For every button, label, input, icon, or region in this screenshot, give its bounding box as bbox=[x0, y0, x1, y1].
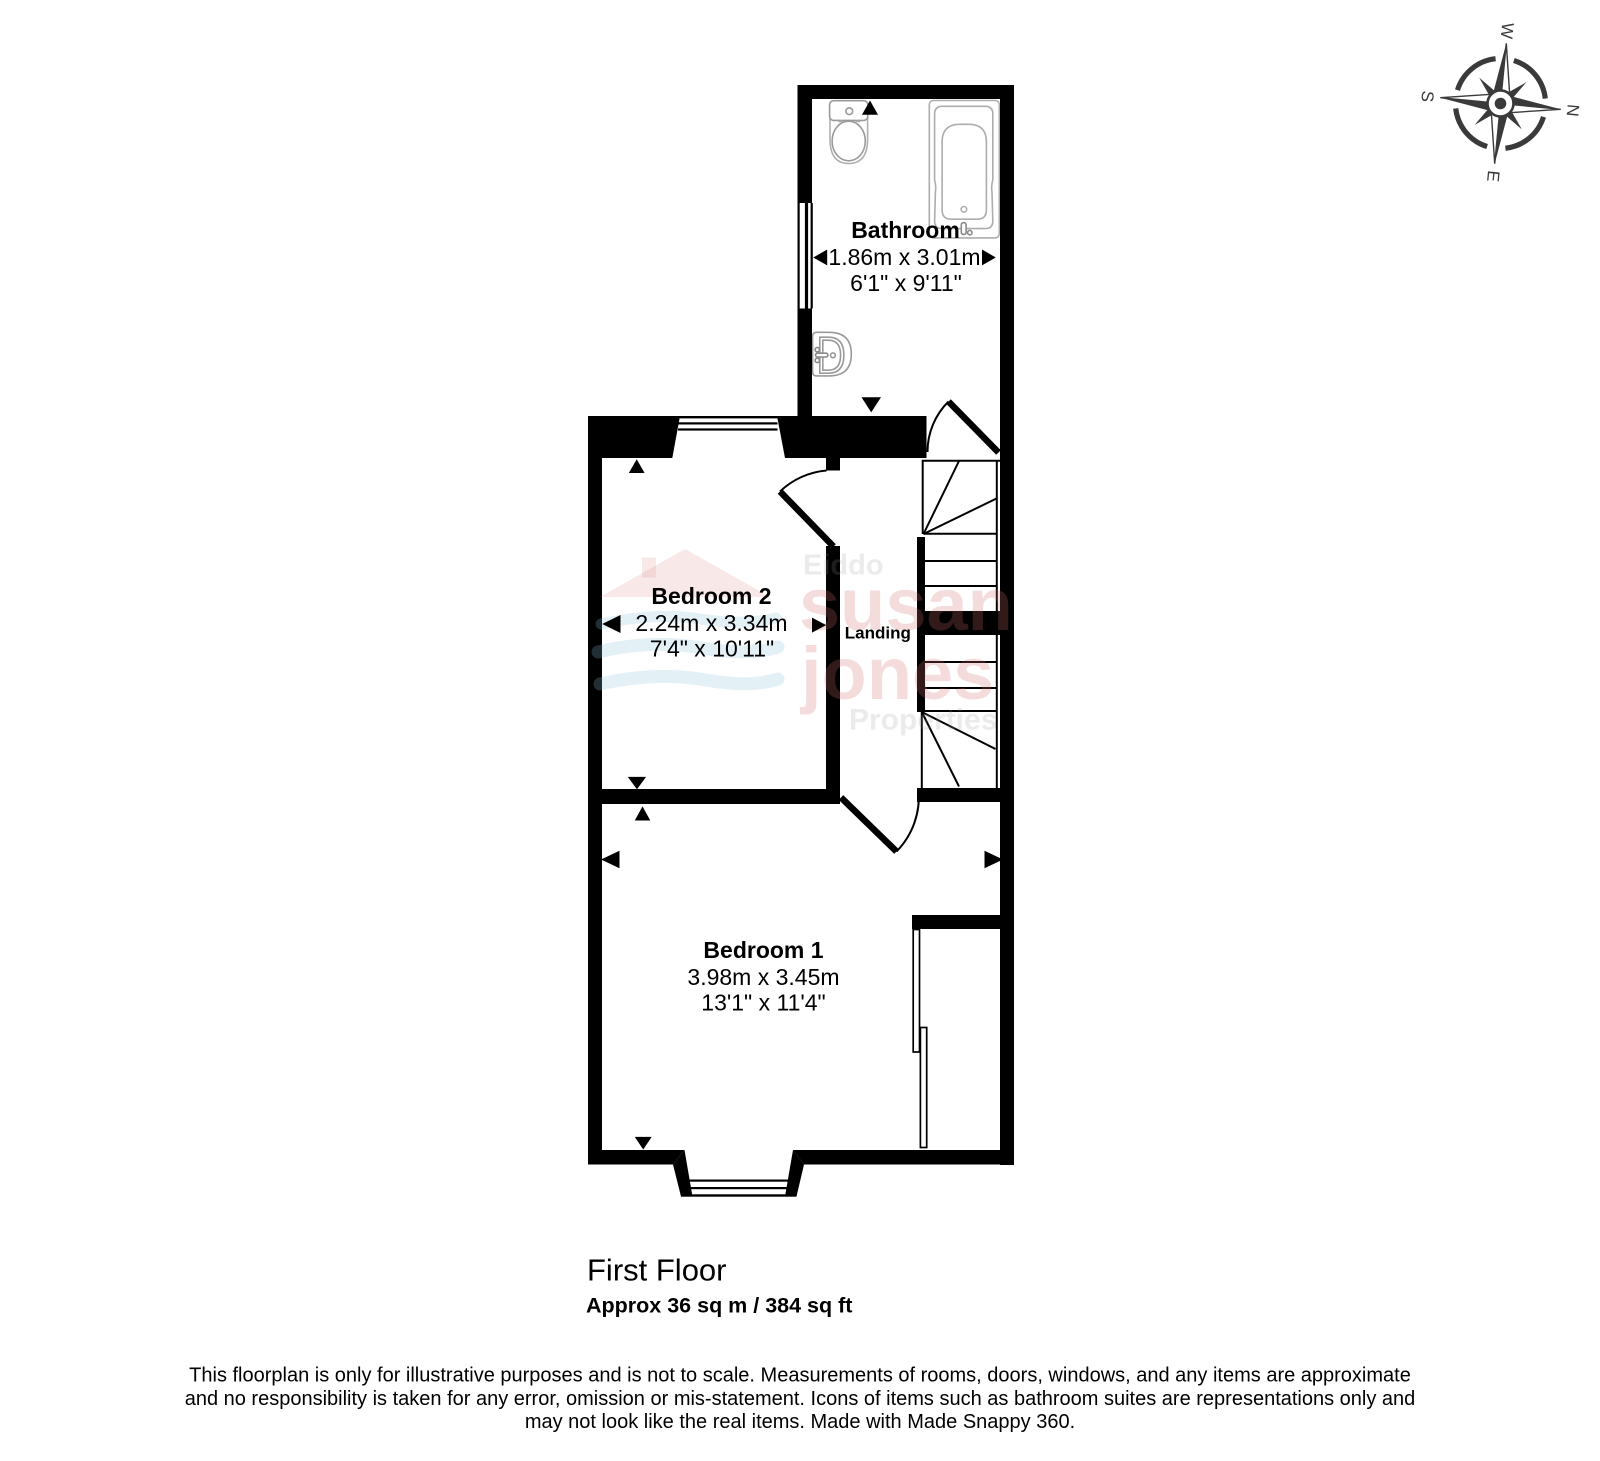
svg-text:2.24m x 3.34m: 2.24m x 3.34m bbox=[635, 610, 787, 636]
svg-text:Bedroom 1: Bedroom 1 bbox=[703, 937, 823, 963]
svg-text:First Floor: First Floor bbox=[587, 1253, 727, 1288]
svg-text:Bathroom: Bathroom bbox=[851, 217, 960, 243]
svg-text:may not look like the real ite: may not look like the real items. Made w… bbox=[525, 1411, 1075, 1433]
svg-text:E: E bbox=[1483, 170, 1503, 183]
svg-text:Landing: Landing bbox=[845, 624, 911, 643]
svg-text:and no responsibility is taken: and no responsibility is taken for any e… bbox=[185, 1388, 1416, 1410]
svg-text:This floorplan is only for ill: This floorplan is only for illustrative … bbox=[189, 1365, 1411, 1387]
svg-text:6'1" x 9'11": 6'1" x 9'11" bbox=[850, 270, 962, 296]
svg-text:13'1" x 11'4": 13'1" x 11'4" bbox=[701, 990, 825, 1016]
svg-text:Approx 36 sq m / 384 sq ft: Approx 36 sq m / 384 sq ft bbox=[586, 1294, 852, 1318]
svg-text:1.86m x 3.01m: 1.86m x 3.01m bbox=[828, 244, 980, 270]
svg-text:Bedroom 2: Bedroom 2 bbox=[651, 583, 771, 609]
svg-text:3.98m x 3.45m: 3.98m x 3.45m bbox=[687, 964, 839, 990]
svg-text:S: S bbox=[1417, 90, 1437, 103]
svg-text:Properties: Properties bbox=[849, 704, 997, 737]
svg-text:W: W bbox=[1497, 22, 1517, 40]
svg-text:N: N bbox=[1563, 103, 1583, 117]
svg-text:7'4" x 10'11": 7'4" x 10'11" bbox=[650, 636, 774, 662]
